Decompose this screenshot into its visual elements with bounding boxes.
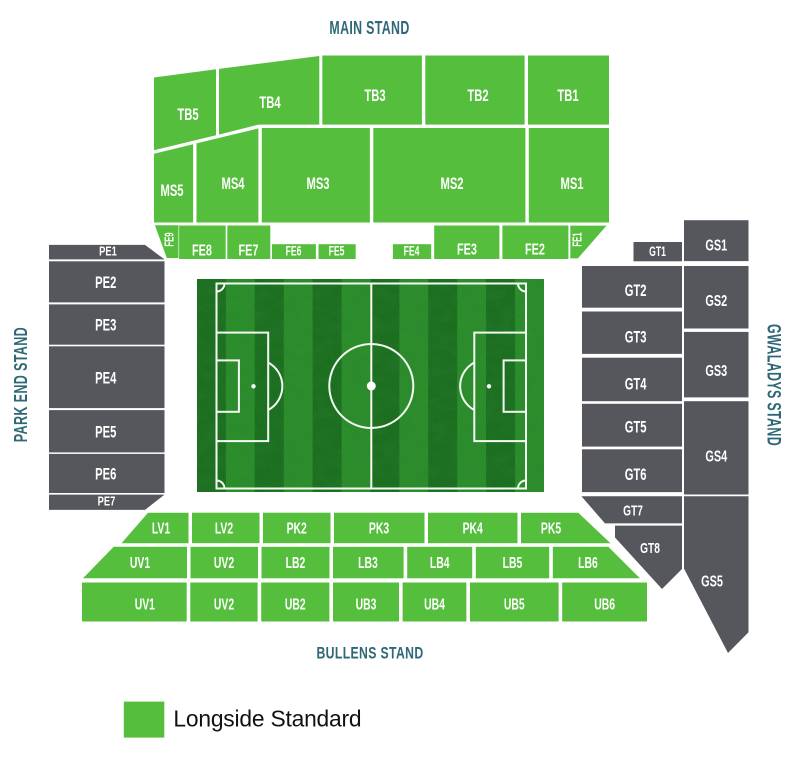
svg-text:UV2: UV2: [214, 554, 234, 572]
svg-text:LV1: LV1: [152, 519, 171, 537]
svg-text:GS1: GS1: [705, 236, 727, 254]
svg-text:GS3: GS3: [705, 362, 727, 380]
svg-text:GT8: GT8: [640, 539, 660, 557]
svg-text:PE1: PE1: [99, 245, 117, 259]
svg-text:LB5: LB5: [503, 554, 523, 572]
svg-text:MS3: MS3: [306, 174, 329, 193]
svg-text:GT3: GT3: [625, 327, 647, 346]
svg-text:GT4: GT4: [625, 374, 647, 393]
svg-text:PK3: PK3: [369, 519, 390, 537]
svg-text:LV2: LV2: [215, 519, 233, 537]
svg-text:PK5: PK5: [541, 519, 562, 537]
svg-text:PE4: PE4: [95, 368, 116, 387]
svg-text:PE2: PE2: [95, 273, 116, 292]
svg-text:UV2: UV2: [214, 595, 234, 613]
svg-text:UB3: UB3: [356, 595, 377, 613]
svg-text:PARK END STAND: PARK END STAND: [12, 327, 32, 442]
svg-text:TB3: TB3: [364, 86, 385, 105]
svg-text:UV1: UV1: [135, 595, 156, 613]
svg-text:PK4: PK4: [463, 519, 484, 537]
svg-text:LB2: LB2: [286, 554, 306, 572]
svg-text:FE4: FE4: [404, 245, 420, 259]
svg-text:GT5: GT5: [625, 417, 647, 436]
svg-text:PE5: PE5: [95, 422, 116, 441]
svg-text:GS2: GS2: [705, 292, 727, 310]
svg-text:MS1: MS1: [560, 174, 583, 193]
svg-text:FE8: FE8: [192, 241, 212, 259]
svg-text:MS2: MS2: [440, 174, 463, 193]
svg-text:TB4: TB4: [259, 93, 280, 112]
svg-text:PE6: PE6: [95, 464, 116, 483]
svg-text:GT6: GT6: [625, 465, 647, 484]
svg-text:GS4: GS4: [705, 447, 727, 465]
svg-text:LB6: LB6: [578, 554, 598, 572]
svg-text:GT7: GT7: [623, 501, 643, 519]
svg-text:FE7: FE7: [239, 241, 259, 259]
svg-text:PK2: PK2: [287, 519, 307, 537]
svg-text:GS5: GS5: [701, 573, 723, 591]
svg-text:PE7: PE7: [98, 495, 116, 509]
svg-text:FE5: FE5: [329, 245, 345, 259]
svg-text:LB4: LB4: [430, 554, 450, 572]
svg-text:FE3: FE3: [457, 240, 477, 258]
svg-text:GT2: GT2: [625, 281, 647, 300]
svg-text:MS4: MS4: [221, 174, 244, 193]
svg-text:MS5: MS5: [160, 181, 183, 200]
svg-text:FE2: FE2: [525, 240, 545, 258]
svg-text:Longside Standard: Longside Standard: [173, 706, 361, 732]
svg-text:UB4: UB4: [424, 595, 445, 613]
svg-text:TB1: TB1: [557, 86, 578, 105]
svg-text:UB2: UB2: [285, 595, 306, 613]
svg-text:TB2: TB2: [467, 86, 488, 105]
svg-text:FE1: FE1: [572, 232, 585, 246]
svg-text:MAIN STAND: MAIN STAND: [329, 19, 409, 39]
svg-text:FE9: FE9: [164, 232, 177, 246]
svg-text:TB5: TB5: [177, 105, 198, 124]
svg-text:UV1: UV1: [130, 554, 151, 572]
svg-text:PE3: PE3: [95, 315, 116, 334]
svg-text:GWALADYS STAND: GWALADYS STAND: [763, 324, 784, 446]
svg-text:UB5: UB5: [504, 595, 525, 613]
svg-text:GT1: GT1: [649, 244, 666, 260]
svg-text:BULLENS STAND: BULLENS STAND: [316, 645, 423, 663]
svg-text:UB6: UB6: [594, 595, 615, 613]
svg-text:LB3: LB3: [358, 554, 378, 572]
svg-text:FE6: FE6: [286, 245, 302, 259]
